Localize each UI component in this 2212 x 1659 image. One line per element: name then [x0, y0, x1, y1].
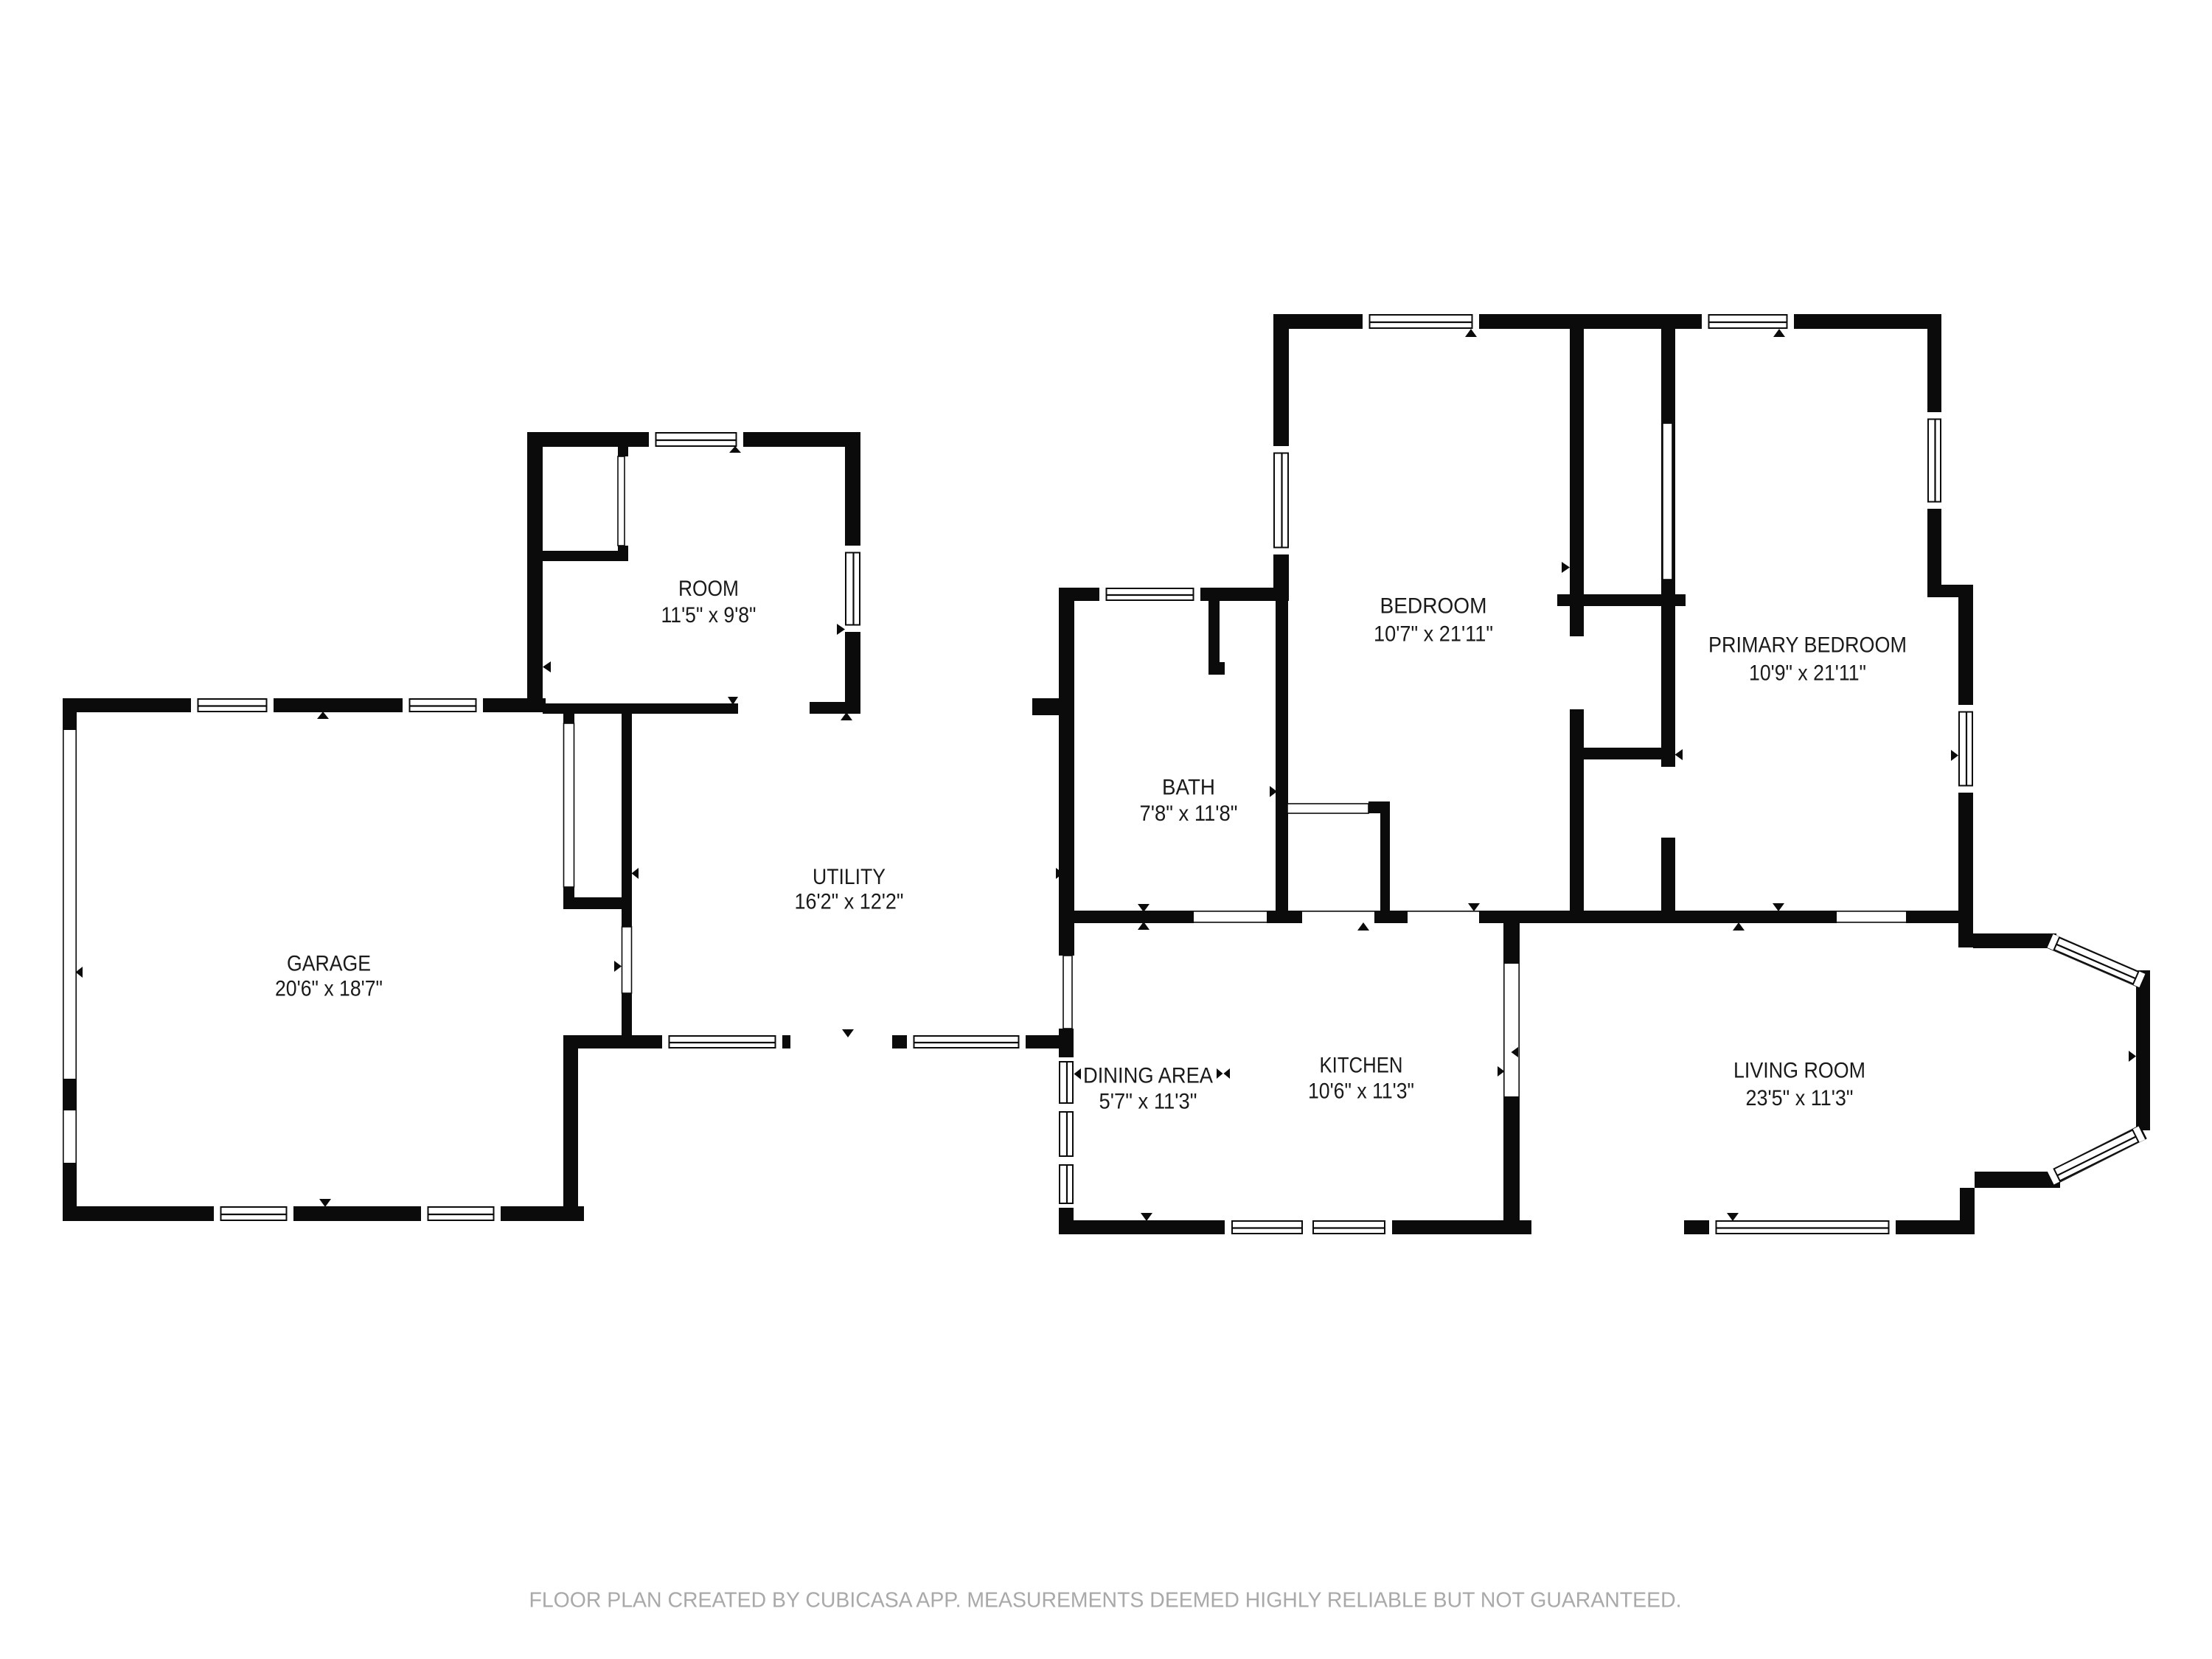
svg-text:BEDROOM: BEDROOM: [1380, 594, 1487, 619]
svg-text:10'7" x 21'11": 10'7" x 21'11": [1374, 622, 1493, 647]
svg-text:10'6" x 11'3": 10'6" x 11'3": [1308, 1079, 1414, 1104]
svg-text:16'2" x 12'2": 16'2" x 12'2": [795, 890, 904, 914]
svg-text:ROOM: ROOM: [678, 577, 739, 601]
svg-text:GARAGE: GARAGE: [287, 952, 371, 976]
svg-text:23'5" x 11'3": 23'5" x 11'3": [1746, 1086, 1854, 1110]
svg-text:KITCHEN: KITCHEN: [1320, 1054, 1403, 1078]
svg-text:DINING AREA: DINING AREA: [1083, 1064, 1213, 1088]
svg-text:7'8" x 11'8": 7'8" x 11'8": [1140, 801, 1238, 826]
svg-text:UTILITY: UTILITY: [813, 865, 886, 889]
svg-text:FLOOR PLAN CREATED BY CUBICASA: FLOOR PLAN CREATED BY CUBICASA APP. MEAS…: [529, 1589, 1682, 1613]
svg-text:PRIMARY BEDROOM: PRIMARY BEDROOM: [1708, 633, 1907, 658]
svg-text:20'6" x 18'7": 20'6" x 18'7": [275, 977, 383, 1001]
svg-text:BATH: BATH: [1162, 776, 1215, 800]
svg-text:LIVING ROOM: LIVING ROOM: [1733, 1059, 1865, 1083]
svg-text:11'5" x 9'8": 11'5" x 9'8": [661, 603, 757, 627]
svg-text:5'7" x 11'3": 5'7" x 11'3": [1099, 1090, 1197, 1114]
svg-text:10'9" x 21'11": 10'9" x 21'11": [1749, 661, 1866, 686]
